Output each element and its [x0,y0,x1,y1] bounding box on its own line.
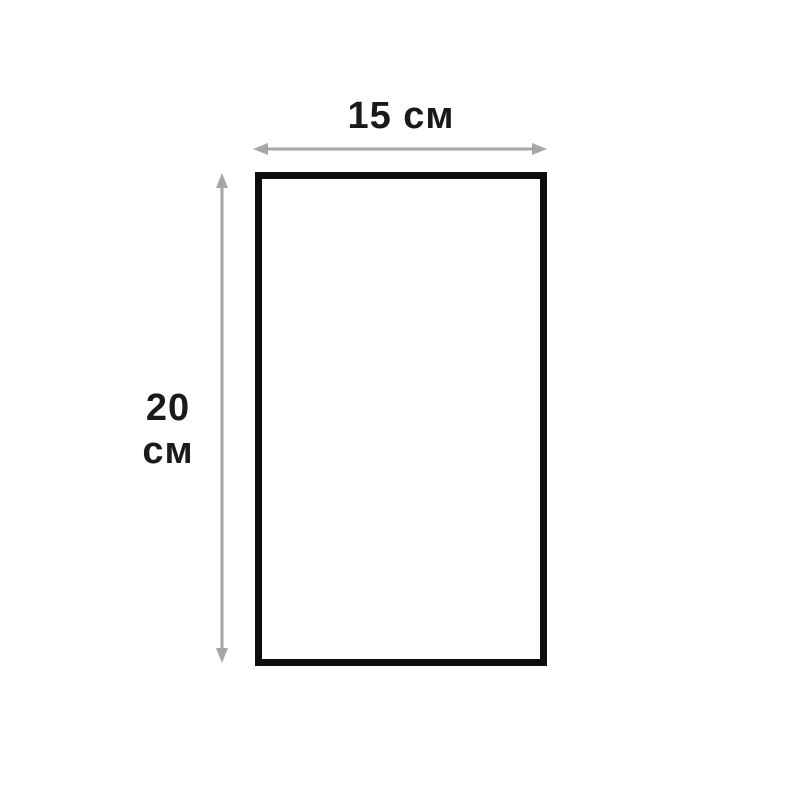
height-dimension-label: 20 см [118,387,218,473]
width-dimension-label: 15 см [255,96,547,136]
height-dimension-unit: см [118,430,218,473]
height-dimension-value: 20 [118,387,218,430]
dimension-diagram: 15 см 20 см [0,0,800,800]
rectangle-outline [255,172,547,666]
width-double-arrow-icon [252,140,548,158]
